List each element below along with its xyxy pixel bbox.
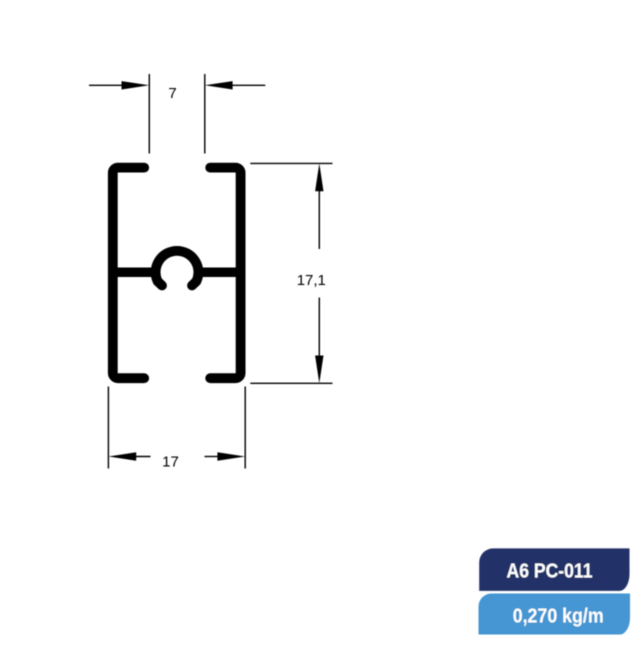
svg-text:17,1: 17,1	[297, 272, 326, 289]
svg-text:0,270 kg/m: 0,270 kg/m	[513, 605, 604, 628]
svg-text:17: 17	[162, 454, 179, 471]
svg-text:7: 7	[168, 85, 176, 102]
svg-text:A6 PC-011: A6 PC-011	[507, 560, 593, 583]
